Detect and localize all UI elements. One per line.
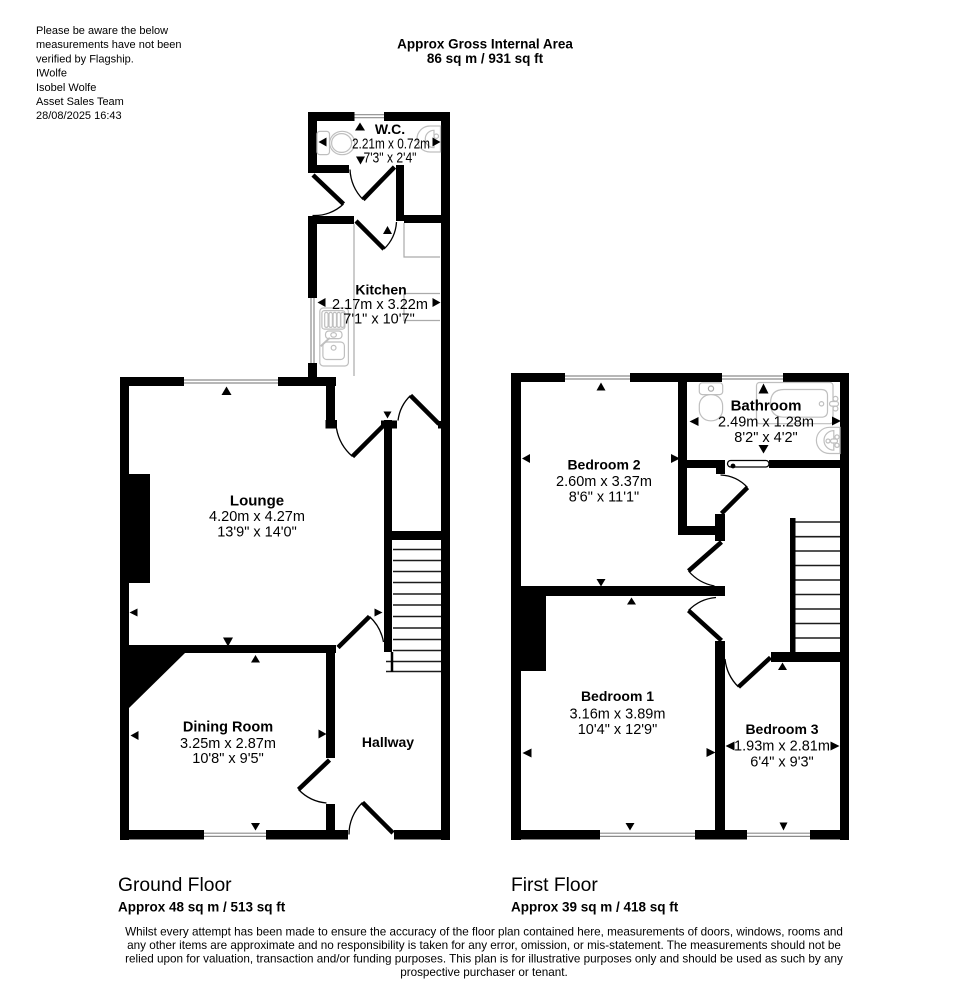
svg-text:2.60m x 3.37m: 2.60m x 3.37m: [556, 474, 652, 490]
svg-text:Lounge: Lounge: [230, 493, 284, 510]
svg-text:10'4" x 12'9": 10'4" x 12'9": [578, 722, 658, 738]
svg-text:Bedroom 1: Bedroom 1: [581, 688, 654, 704]
svg-text:Approx 39 sq m / 418 sq ft: Approx 39 sq m / 418 sq ft: [511, 900, 679, 915]
svg-text:Bedroom 2: Bedroom 2: [567, 457, 640, 473]
svg-text:measurements have not been: measurements have not been: [36, 39, 182, 51]
svg-text:Approx 48 sq m / 513 sq ft: Approx 48 sq m / 513 sq ft: [118, 900, 286, 915]
svg-text:8'6" x 11'1": 8'6" x 11'1": [569, 490, 639, 506]
svg-text:any other items are approximat: any other items are approximate and no r…: [127, 939, 841, 952]
svg-text:8'2" x 4'2": 8'2" x 4'2": [734, 430, 797, 446]
svg-text:IWolfe: IWolfe: [36, 68, 67, 80]
svg-text:Please be aware the below: Please be aware the below: [36, 25, 168, 37]
svg-text:86 sq m / 931 sq ft: 86 sq m / 931 sq ft: [427, 51, 544, 66]
svg-text:10'8" x 9'5": 10'8" x 9'5": [192, 751, 263, 767]
svg-text:4.20m x 4.27m: 4.20m x 4.27m: [209, 509, 305, 525]
svg-text:Bathroom: Bathroom: [731, 398, 802, 415]
svg-text:2.49m x 1.28m: 2.49m x 1.28m: [718, 415, 814, 431]
svg-text:13'9" x 14'0": 13'9" x 14'0": [217, 525, 297, 541]
svg-text:First Floor: First Floor: [511, 875, 598, 896]
svg-text:Ground Floor: Ground Floor: [118, 875, 232, 896]
svg-text:Approx Gross Internal Area: Approx Gross Internal Area: [397, 37, 573, 52]
svg-text:Isobel Wolfe: Isobel Wolfe: [36, 82, 96, 94]
svg-text:Dining Room: Dining Room: [183, 720, 273, 736]
svg-text:relied upon for valuation, tra: relied upon for valuation, transaction a…: [125, 953, 843, 966]
svg-text:3.16m x 3.89m: 3.16m x 3.89m: [570, 707, 666, 723]
svg-text:Kitchen: Kitchen: [355, 282, 406, 298]
svg-text:7'1" x 10'7": 7'1" x 10'7": [343, 312, 414, 328]
svg-text:prospective purchaser or tenan: prospective purchaser or tenant.: [400, 966, 568, 979]
svg-text:Whilst every attempt has been: Whilst every attempt has been made to en…: [125, 926, 843, 939]
svg-text:1.93m x 2.81m: 1.93m x 2.81m: [734, 739, 830, 755]
svg-text:Hallway: Hallway: [362, 734, 414, 750]
svg-text:6'4" x 9'3": 6'4" x 9'3": [750, 755, 813, 771]
svg-text:7'3" x 2'4": 7'3" x 2'4": [364, 150, 417, 167]
svg-text:Asset Sales Team: Asset Sales Team: [36, 96, 124, 108]
svg-text:28/08/2025 16:43: 28/08/2025 16:43: [36, 110, 122, 122]
svg-text:verified by Flagship.: verified by Flagship.: [36, 53, 134, 65]
svg-text:3.25m x 2.87m: 3.25m x 2.87m: [180, 736, 276, 752]
svg-text:Bedroom 3: Bedroom 3: [745, 721, 818, 737]
